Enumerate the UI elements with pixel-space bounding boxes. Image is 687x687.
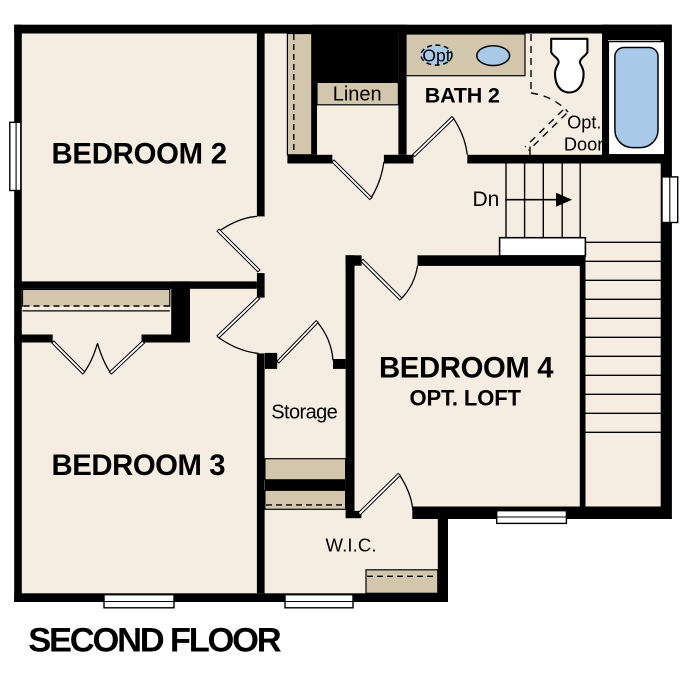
svg-text:SECOND FLOOR: SECOND FLOOR bbox=[28, 622, 282, 660]
svg-text:Opt: Opt bbox=[422, 46, 450, 66]
svg-text:BEDROOM 3: BEDROOM 3 bbox=[52, 449, 226, 482]
svg-text:BATH 2: BATH 2 bbox=[425, 84, 500, 108]
svg-text:Dn: Dn bbox=[472, 188, 499, 211]
svg-text:BEDROOM 4: BEDROOM 4 bbox=[379, 352, 554, 385]
svg-text:OPT. LOFT: OPT. LOFT bbox=[410, 385, 522, 410]
svg-text:Storage: Storage bbox=[271, 401, 338, 423]
svg-text:Opt.: Opt. bbox=[567, 112, 601, 132]
svg-text:Linen: Linen bbox=[333, 83, 382, 105]
svg-text:Door: Door bbox=[564, 134, 603, 154]
svg-text:W.I.C.: W.I.C. bbox=[326, 534, 377, 555]
svg-text:BEDROOM 2: BEDROOM 2 bbox=[52, 138, 228, 171]
